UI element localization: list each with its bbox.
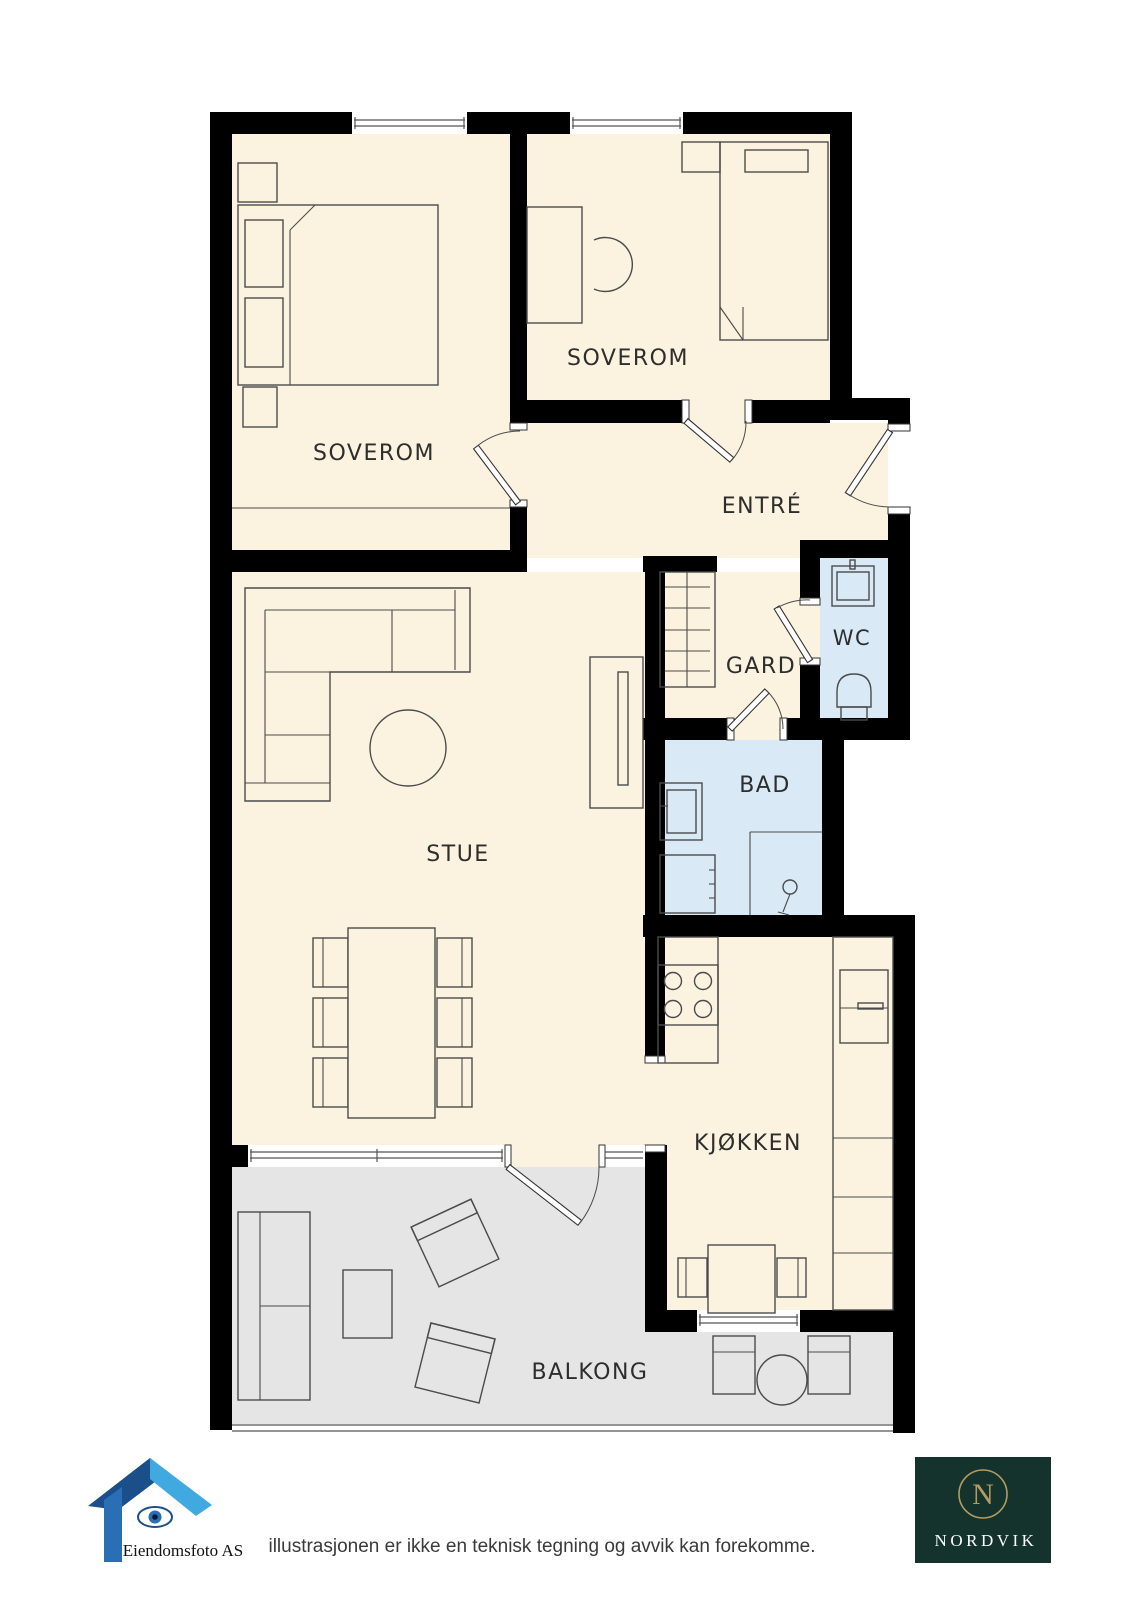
floorplan-page: SOVEROM SOVEROM ENTRÉ GARD WC BAD STUE K… [0,0,1131,1600]
window-soverom-left [352,112,467,134]
label-wc: WC [833,626,871,650]
balcony-railing [232,1425,893,1431]
floor-door-balkong [508,1145,602,1167]
wall-soverom-top-right [830,112,852,420]
wall-entre-right-a [888,420,910,424]
wall-bad-right [822,718,844,937]
wall-wc-top [800,540,910,558]
wall-top-1 [210,112,352,134]
wall-stue-gard-divider [645,556,665,1063]
photo-credit-text: Eiendomsfoto AS [123,1541,243,1560]
footer: illustrasjonen er ikke en teknisk tegnin… [88,1457,1051,1563]
label-soverom-top: SOVEROM [567,346,689,371]
floor-entre-strip [527,540,800,558]
wall-kjokken-right [893,915,915,1433]
window-stue-balkong-small [602,1145,645,1167]
wall-stue-top [210,550,527,572]
kitchen-table [708,1245,775,1313]
wall-gard-bottom-b [787,718,820,740]
label-gard: GARD [726,654,796,679]
wall-outer-left [210,112,232,1430]
wall-soverom-top-south-b [752,400,830,423]
label-bad: BAD [739,773,791,798]
wall-soverom-left-stub [510,507,527,552]
window-soverom-top [570,112,683,134]
logo-pupil [152,1514,158,1520]
label-balkong: BALKONG [532,1360,649,1385]
floor-door-soverom-top [682,400,752,423]
jamb-passage-bottom [645,1145,665,1152]
wall-gard-bottom-a [643,718,727,740]
window-stue-balkong [248,1145,505,1167]
wall-kjokken-left-low [645,1145,667,1332]
desk [527,207,582,323]
balcony-round-table [757,1355,807,1405]
label-entre: ENTRÉ [722,493,802,519]
wall-kjokken-south-b [800,1310,893,1332]
bed-double [238,205,438,385]
floor-gard [665,572,800,718]
label-soverom-left: SOVEROM [313,441,435,466]
floor-kjokken [665,937,893,1310]
jamb-passage-top [645,1056,665,1063]
nordvik-monogram: N [972,1478,994,1511]
wall-entre-top [830,398,910,420]
label-stue: STUE [426,842,489,867]
floor-bad [665,740,822,915]
wall-top-3 [683,112,852,134]
wall-bad-kjokken [643,915,915,937]
wall-kjokken-south-a [645,1310,697,1332]
disclaimer-text: illustrasjonen er ikke en teknisk tegnin… [268,1536,815,1557]
floor-passage-stue-kjokken [645,1063,667,1145]
nordvik-logo: N NORDVIK [915,1457,1051,1563]
wall-top-2 [467,112,570,134]
wall-stue-south-a [210,1145,248,1167]
wall-soverom-divider [510,134,527,400]
logo-body [104,1487,122,1562]
floor-balkong-left [232,1167,645,1424]
label-kjokken: KJØKKEN [694,1131,802,1156]
wall-soverom-top-south-a [510,400,682,423]
wall-wc-left-b [800,665,820,718]
bed-single [720,142,828,340]
floor-plan-svg: SOVEROM SOVEROM ENTRÉ GARD WC BAD STUE K… [0,0,1131,1600]
eiendomsfoto-logo: Eiendomsfoto AS [88,1458,243,1562]
nordvik-brand-text: NORDVIK [935,1531,1038,1550]
dining-table [348,928,435,1118]
wall-wc-left-a [800,558,820,598]
